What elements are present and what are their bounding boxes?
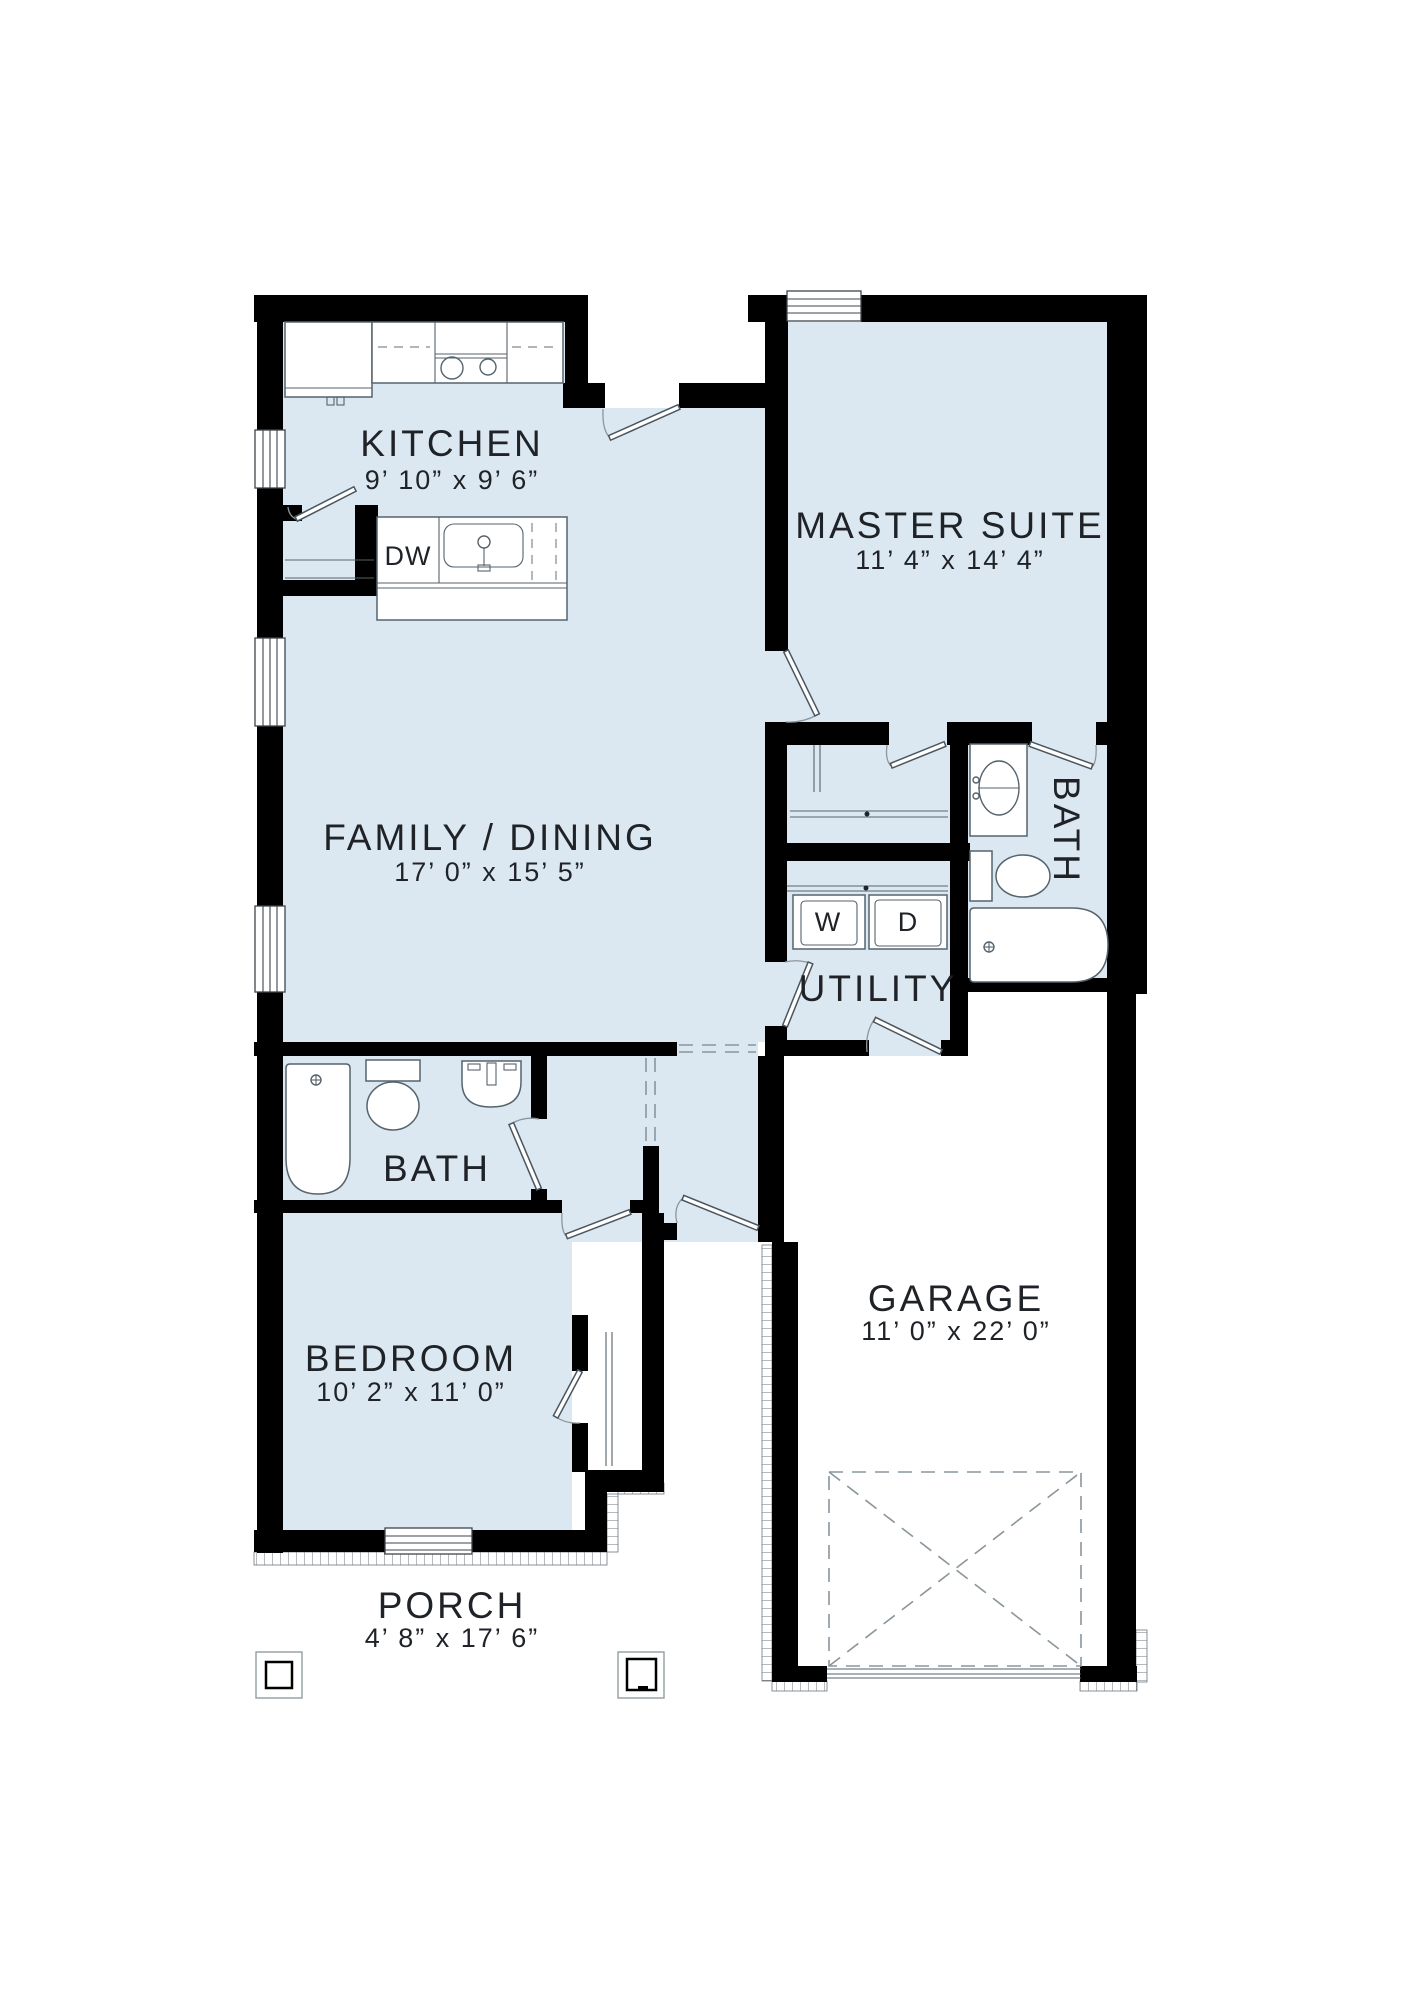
- wall: [772, 1666, 827, 1682]
- wall: [947, 722, 1032, 745]
- doorway-floor: [765, 962, 787, 1026]
- square-symbol-icon: [256, 1652, 302, 1698]
- wall: [257, 598, 283, 638]
- wall: [941, 1040, 968, 1056]
- legend-symbols: [256, 1652, 664, 1698]
- washer-label: W: [815, 907, 841, 937]
- wall: [257, 295, 283, 430]
- bath-label: BATH: [383, 1148, 491, 1189]
- utility-label: UTILITY: [799, 968, 958, 1009]
- garage-hatch-right: [1136, 1630, 1147, 1682]
- kitchen-dims: 9’ 10” x 9’ 6”: [365, 465, 540, 495]
- garage-hatch-bottom-left: [772, 1681, 827, 1691]
- floor-plan-canvas: KITCHEN 9’ 10” x 9’ 6” MASTER SUITE 11’ …: [0, 0, 1419, 2000]
- wall: [1096, 722, 1145, 745]
- floor-plan-page: KITCHEN 9’ 10” x 9’ 6” MASTER SUITE 11’ …: [0, 0, 1419, 2000]
- garage-dims: 11’ 0” x 22’ 0”: [861, 1316, 1051, 1346]
- wall: [679, 383, 767, 408]
- wall: [565, 295, 588, 385]
- wall: [572, 1423, 588, 1472]
- porch-label: PORCH: [378, 1585, 527, 1626]
- wall: [572, 1315, 588, 1371]
- garage-door-dashed-area: [829, 1472, 1081, 1666]
- opening-floor: [677, 1042, 758, 1056]
- bedroom-window: [385, 1528, 472, 1554]
- bedroom-dims: 10’ 2” x 11’ 0”: [316, 1377, 506, 1407]
- wall: [254, 295, 588, 322]
- master-suite-label: MASTER SUITE: [795, 505, 1104, 546]
- family-dining-label: FAMILY / DINING: [323, 817, 657, 858]
- family-window: [255, 638, 285, 726]
- doorway-floor: [889, 722, 947, 745]
- garage-label: GARAGE: [868, 1278, 1044, 1319]
- kitchen-window: [255, 430, 285, 488]
- wall: [642, 1213, 664, 1492]
- master-bath-label: BATH: [1046, 776, 1087, 884]
- garage-hatch-bottom-right: [1080, 1681, 1137, 1691]
- wall: [472, 1530, 607, 1552]
- wall: [950, 745, 968, 855]
- porch-hatch-side: [607, 1494, 618, 1552]
- wall: [1080, 1666, 1137, 1682]
- wall: [1107, 994, 1136, 1682]
- porch-dims: 4’ 8” x 17’ 6”: [365, 1623, 540, 1653]
- wall: [765, 1040, 869, 1056]
- wall: [758, 1056, 784, 1242]
- bedroom-closet-rod: [606, 1332, 612, 1466]
- master-suite-dims: 11’ 4” x 14’ 4”: [855, 545, 1045, 575]
- wall: [254, 1042, 677, 1056]
- toilet-icon: [366, 1060, 420, 1130]
- family-dining-dims: 17’ 0” x 15’ 5”: [394, 857, 586, 887]
- vanity-sink-icon: [970, 744, 1027, 836]
- wall: [254, 1200, 562, 1213]
- master-suite-window: [787, 291, 861, 321]
- wall: [765, 295, 788, 651]
- sink-icon: [462, 1061, 521, 1107]
- toilet-icon: [970, 851, 1050, 901]
- wall: [765, 722, 889, 745]
- monitor-symbol-icon: [618, 1652, 664, 1698]
- wall: [772, 1242, 798, 1682]
- family-window: [255, 906, 285, 992]
- room-family-floor: [565, 408, 765, 1042]
- wall: [563, 383, 605, 408]
- wall: [950, 861, 968, 1056]
- wall: [531, 1056, 547, 1119]
- kitchen-counter: [372, 322, 563, 383]
- doorway-floor: [1032, 722, 1096, 745]
- wall: [1107, 295, 1147, 994]
- wall: [643, 1146, 659, 1204]
- wall: [780, 843, 970, 861]
- garage-details: [827, 1472, 1081, 1678]
- dryer-label: D: [898, 907, 919, 937]
- bathtub-icon: [970, 908, 1108, 982]
- garage-hatch-left: [762, 1245, 772, 1681]
- wall: [254, 1530, 385, 1552]
- wall: [257, 1213, 283, 1553]
- wall: [861, 295, 1147, 322]
- dishwasher-label: DW: [385, 541, 432, 571]
- fridge-icon: [285, 322, 372, 405]
- kitchen-label: KITCHEN: [360, 423, 543, 464]
- garage-door-sill: [827, 1669, 1081, 1678]
- bathtub-icon: [286, 1064, 350, 1194]
- wall: [257, 726, 283, 906]
- wall: [355, 505, 378, 596]
- bedroom-label: BEDROOM: [305, 1338, 517, 1379]
- wall: [257, 992, 283, 1213]
- doorway-floor: [765, 651, 788, 722]
- doorway-floor: [562, 1200, 630, 1213]
